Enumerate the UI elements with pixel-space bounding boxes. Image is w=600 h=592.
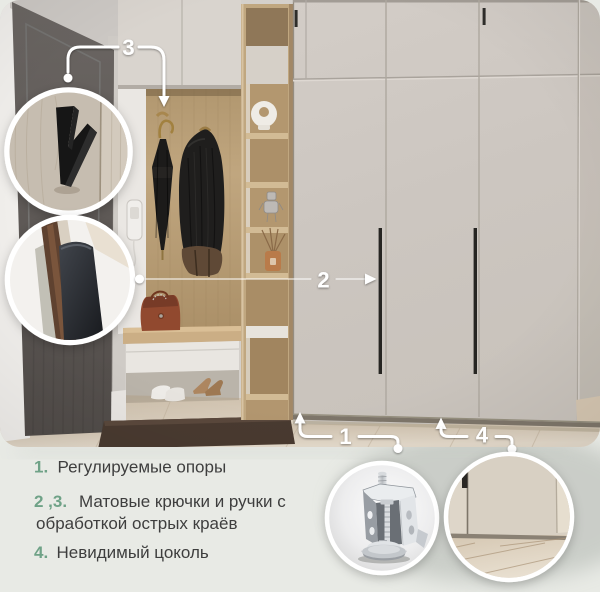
svg-text:3: 3 [122, 35, 134, 60]
svg-text:1.: 1. [34, 458, 48, 477]
svg-text:Невидимый цоколь: Невидимый цоколь [57, 543, 209, 562]
svg-text:2 ,3.: 2 ,3. [34, 492, 67, 511]
svg-text:4: 4 [476, 423, 489, 448]
svg-text:Регулируемые опоры: Регулируемые опоры [58, 458, 227, 477]
svg-text:обработкой острых краёв: обработкой острых краёв [36, 514, 237, 533]
svg-text:Матовые крючки и ручки с: Матовые крючки и ручки с [79, 492, 286, 511]
svg-text:2: 2 [317, 268, 329, 293]
svg-text:4.: 4. [34, 543, 48, 562]
svg-text:1: 1 [339, 424, 351, 449]
